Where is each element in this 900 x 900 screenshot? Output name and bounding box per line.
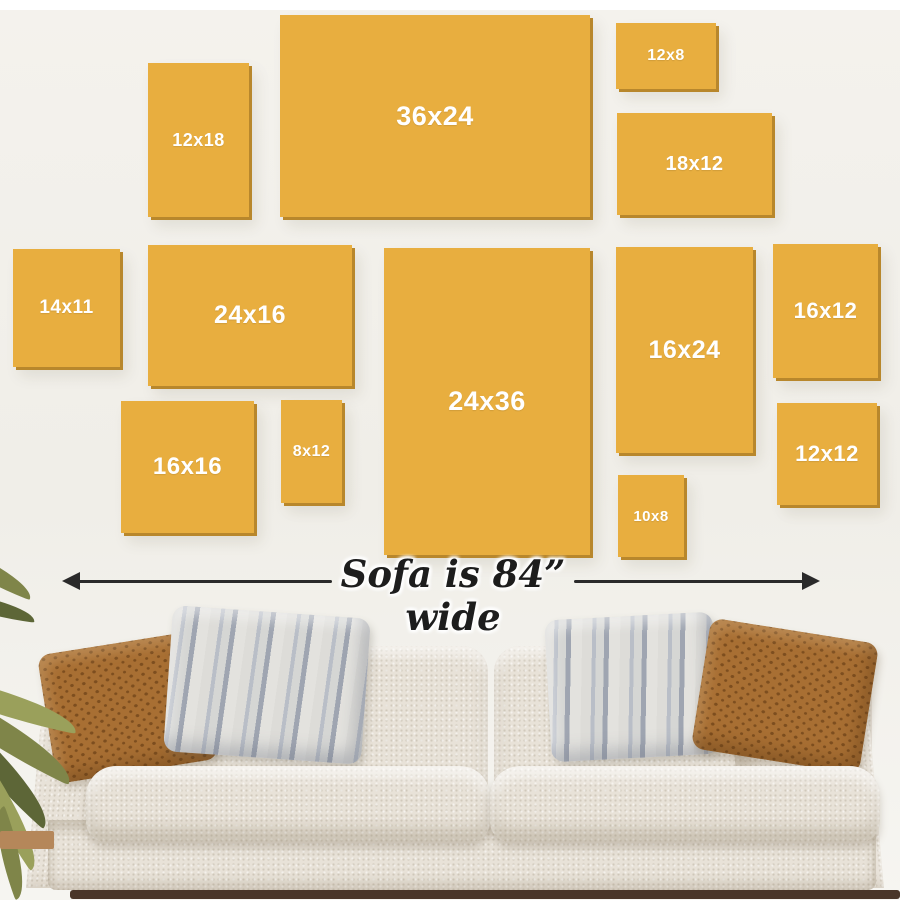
size-frame-16x24: 16x24: [616, 247, 753, 453]
size-frame-24x36: 24x36: [384, 248, 590, 555]
floor-shadow: [70, 890, 900, 899]
seat-cushion-left: [86, 766, 490, 842]
size-frame-16x16: 16x16: [121, 401, 254, 533]
size-frame-18x12: 18x12: [617, 113, 772, 215]
size-frame-12x12: 12x12: [777, 403, 877, 505]
size-frame-12x8: 12x8: [616, 23, 716, 89]
size-label: 14x11: [39, 297, 93, 319]
size-frame-8x12: 8x12: [281, 400, 342, 503]
pillow-striped-left: [163, 605, 371, 764]
size-label: 24x16: [214, 301, 286, 330]
size-label: 16x16: [153, 453, 222, 481]
size-frame-16x12: 16x12: [773, 244, 878, 378]
size-label: 24x36: [448, 386, 526, 417]
size-label: 16x12: [794, 298, 858, 324]
size-label: 10x8: [633, 508, 668, 525]
size-frame-14x11: 14x11: [13, 249, 120, 367]
seat-cushion-right: [490, 766, 880, 842]
size-label: 12x12: [795, 441, 859, 467]
size-frame-12x18: 12x18: [148, 63, 249, 217]
size-label: 8x12: [293, 443, 331, 461]
pillow-brown-right: [691, 618, 880, 775]
size-frame-24x16: 24x16: [148, 245, 352, 386]
size-label: 18x12: [665, 153, 723, 176]
size-label: 12x8: [647, 47, 685, 65]
size-frame-36x24: 36x24: [280, 15, 590, 217]
frames-layer: 12x1836x2412x818x1214x1124x1624x3616x241…: [0, 0, 900, 600]
size-guide-image: 12x1836x2412x818x1214x1124x1624x3616x241…: [0, 0, 900, 900]
size-frame-10x8: 10x8: [618, 475, 684, 557]
size-label: 16x24: [648, 336, 720, 365]
size-label: 12x18: [172, 130, 225, 151]
size-label: 36x24: [396, 101, 474, 132]
